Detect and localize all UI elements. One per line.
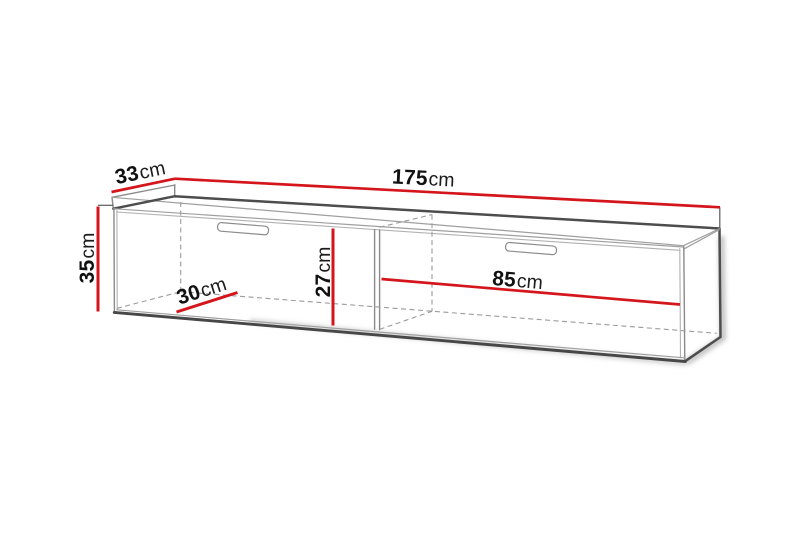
top-panel — [112, 185, 684, 246]
front-right-outer-edge — [684, 247, 685, 361]
dimension-value: 35 — [76, 260, 99, 284]
hidden-interior-edges — [117, 202, 717, 333]
center-divider — [375, 230, 380, 330]
shadow-right-edge — [687, 236, 724, 363]
dimension-label-interior-height: 27cm — [312, 247, 335, 298]
dimension-label-depth: 33cm — [113, 156, 167, 189]
interior-bottom-left-depth-edge — [117, 292, 181, 309]
diagram-canvas: 33cm 175cm 35cm 30cm 27cm 85cm — [0, 0, 800, 533]
dimension-diagram: 33cm 175cm 35cm 30cm 27cm 85cm — [0, 0, 800, 533]
dimension-unit: cm — [313, 247, 335, 273]
front-right-inner-edge — [680, 249, 681, 358]
dimension-value: 27 — [312, 274, 335, 298]
left-outer-edge — [114, 209, 115, 312]
dimension-label-width: 175cm — [391, 165, 455, 191]
bottom-inner-edge — [117, 310, 684, 358]
dimension-label-compartment-width: 85cm — [491, 267, 544, 294]
right-drawer-handle-cutout — [505, 242, 557, 255]
right-face-top-edge — [684, 229, 720, 246]
dimension-unit: cm — [77, 233, 99, 259]
left-drawer-handle-cutout — [217, 222, 269, 235]
top-panel-left-thickness-edge — [112, 197, 113, 208]
right-face-top-inner-edge — [684, 230, 720, 249]
cabinet-outline — [112, 185, 721, 362]
dimension-label-height: 35cm — [76, 233, 99, 284]
dimension-value: 175 — [391, 165, 428, 190]
dimension-value: 33 — [113, 162, 141, 189]
bottom-front-edge — [114, 312, 685, 361]
dimension-value: 85 — [491, 267, 517, 292]
dimension-unit: cm — [516, 270, 544, 294]
divider-bottom-depth-edge — [380, 311, 432, 329]
front-face-top-edge — [113, 209, 683, 247]
dimension-unit: cm — [428, 168, 455, 191]
interior-bottom-back-edge — [181, 292, 717, 334]
opening-top-edge — [117, 212, 680, 250]
